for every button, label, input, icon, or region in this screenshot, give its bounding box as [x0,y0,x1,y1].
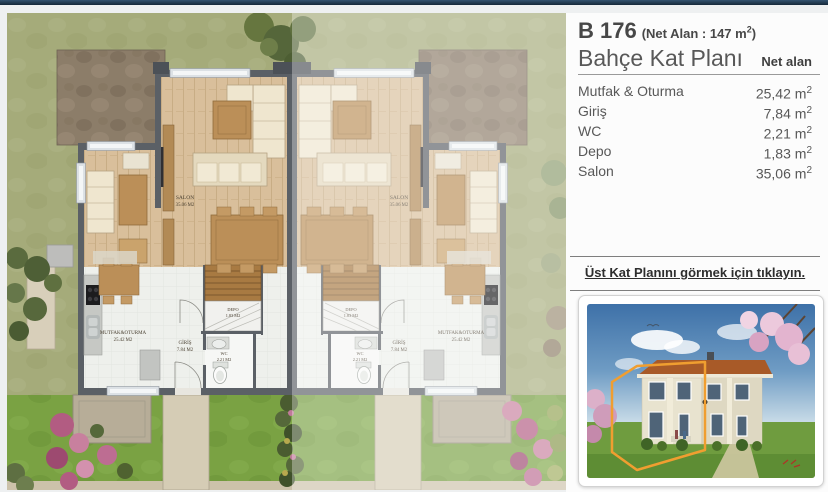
room-label: Giriş [578,103,607,119]
table-row: Salon 35,06 m2 [578,162,812,182]
svg-text:25.42 M2: 25.42 M2 [114,338,133,343]
plan-fade-overlay [292,13,566,490]
villa-photo [587,304,815,478]
svg-text:DEPO: DEPO [227,307,238,312]
floor-plan-image: SALON 35.06 M2 MUTFAK&OTURMA 25.42 M2 Gİ… [7,13,566,490]
table-row: Depo 1,83 m2 [578,142,812,162]
room-label: Mutfak & Oturma [578,83,684,99]
room-area-value: 7,84 m2 [764,105,812,122]
svg-text:35.06 M2: 35.06 M2 [176,203,195,208]
svg-text:MUTFAK&OTURMA: MUTFAK&OTURMA [100,331,147,336]
plan-patio-left [57,50,165,145]
svg-text:1.83 M2: 1.83 M2 [226,313,241,318]
svg-text:2.21 M2: 2.21 M2 [217,357,232,362]
room-area-value: 25,42 m2 [756,85,812,102]
page: SALON 35.06 M2 MUTFAK&OTURMA 25.42 M2 Gİ… [0,0,828,492]
svg-text:SALON: SALON [176,195,194,201]
unit-title: B 176(Net Alan : 147 m2) [578,19,812,43]
room-area-table: Mutfak & Oturma 25,42 m2 Giriş 7,84 m2 W… [578,82,812,182]
room-area-value: 1,83 m2 [764,145,812,162]
unit-net-area-note: (Net Alan : 147 m2) [642,26,756,41]
svg-text:GİRİŞ: GİRİŞ [178,340,191,346]
table-row: Giriş 7,84 m2 [578,102,812,122]
info-panel: B 176(Net Alan : 147 m2) Bahçe Kat Planı… [566,13,828,492]
header-divider [578,74,820,75]
table-row: Mutfak & Oturma 25,42 m2 [578,82,812,102]
room-label: Salon [578,163,614,179]
area-column-header: Net alan [761,54,812,71]
unit-code: B 176 [578,18,637,43]
room-area-value: 35,06 m2 [756,165,812,182]
top-navigation-bar [0,0,828,5]
page-title: Bahçe Kat Planı [578,45,743,71]
room-label: Depo [578,143,611,159]
room-label: WC [578,123,601,139]
room-area-value: 2,21 m2 [764,125,812,142]
upper-floor-plan-link[interactable]: Üst Kat Planını görmek için tıklayın. [585,265,805,280]
svg-text:7.84 M2: 7.84 M2 [177,348,194,353]
upper-floor-link-box: Üst Kat Planını görmek için tıklayın. [570,256,820,291]
floor-plan-svg: SALON 35.06 M2 MUTFAK&OTURMA 25.42 M2 Gİ… [7,13,566,490]
table-row: WC 2,21 m2 [578,122,812,142]
villa-render-thumbnail[interactable] [578,295,824,487]
svg-text:WC: WC [221,351,228,356]
